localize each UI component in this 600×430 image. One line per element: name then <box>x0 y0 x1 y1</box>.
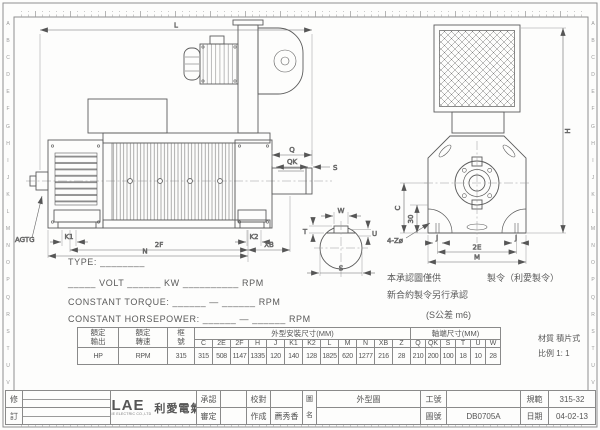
blower-assembly <box>184 20 303 133</box>
review-value <box>221 408 247 425</box>
dwg-no-label: 圖號 <box>421 408 447 425</box>
approval-note-left: 本承認圖僅供 <box>387 271 441 284</box>
grid-letter: I <box>4 159 13 164</box>
table-col-L: L <box>321 340 339 348</box>
dim-label-S-section: S <box>339 265 344 273</box>
date-value: 04-02-13 <box>549 408 596 425</box>
grid-letter: M <box>589 227 598 232</box>
grid-letter: L <box>4 210 13 215</box>
title-block: 修 LAELI AIE ELECTRIC CO.,LTD 利愛電氣 承認 校對 … <box>5 390 596 425</box>
grid-letters-right: ABCDEFGHIJKLMNOPQRSTUV <box>589 22 598 386</box>
check-label: 校對 <box>247 391 271 408</box>
table-col-K1: K1 <box>285 340 303 348</box>
table-values-row: HP RPM 315 31550811471335120140128182562… <box>78 348 501 365</box>
job-no-label: 工號 <box>421 391 447 408</box>
drawing-sheet: L Q QK S K1 K2 2F XB N AGTG <box>0 0 600 430</box>
grid-letter: M <box>4 227 13 232</box>
revision-label-top: 修 <box>6 391 23 408</box>
table-value-XB: 216 <box>375 348 393 365</box>
dimension-table: 額定輸出 額定轉速 框號 外型安裝尺寸(MM) 軸端尺寸(MM) C2E2FHJ… <box>77 327 501 365</box>
logo-lae-text: LAE <box>112 400 145 412</box>
grid-letter: I <box>589 159 598 164</box>
scale-value: 1: 1 <box>556 349 569 358</box>
table-col-N: N <box>357 340 375 348</box>
grid-letter: C <box>589 56 598 61</box>
table-value-N: 1277 <box>357 348 375 365</box>
made-label: 作成 <box>247 408 271 425</box>
rated-speed-header: 額定轉速 <box>119 328 168 348</box>
table-value-K2: 128 <box>303 348 321 365</box>
rated-output-header: 額定輸出 <box>78 328 119 348</box>
dim-label-M: M <box>474 254 480 262</box>
grid-letter: N <box>4 244 13 249</box>
drawing-name-label: 圖名 <box>303 391 317 425</box>
dim-label-H: H <box>564 128 572 133</box>
table-col-Q: Q <box>411 340 426 348</box>
grid-letter: A <box>4 22 13 27</box>
grid-letter: J <box>589 176 598 181</box>
dim-label-2E: 2E <box>473 244 482 252</box>
job-no-value <box>447 391 521 408</box>
drawing-name-value: 外型圖 <box>317 391 421 408</box>
dim-label-W: W <box>338 207 345 215</box>
dim-label-C: C <box>394 205 402 210</box>
dim-label-2F: 2F <box>155 241 163 249</box>
grid-letter: F <box>589 107 598 112</box>
grid-letter: F <box>4 107 13 112</box>
grid-letter: U <box>589 364 598 369</box>
dim-label-holes: 4-Zø <box>387 237 404 245</box>
table-col-2F: 2F <box>231 340 249 348</box>
dim-label-T: T <box>302 228 308 236</box>
dim-label-QK: QK <box>287 158 298 166</box>
company-logo: LAELI AIE ELECTRIC CO.,LTD 利愛電氣 <box>111 400 196 416</box>
revision-label-bottom: 訂 <box>6 408 23 425</box>
material-value: 積片式 <box>556 334 580 343</box>
dim-label-K1: K1 <box>64 233 73 241</box>
table-col-Z: Z <box>393 340 411 348</box>
drawing-name-bottom <box>317 408 421 425</box>
scale-label: 比例 <box>538 349 554 358</box>
grid-letters-left: ABCDEFGHIJKLMNOPQRSTUV <box>4 22 13 386</box>
grid-letter: G <box>589 125 598 130</box>
table-col-C: C <box>195 340 213 348</box>
power-line: _____ VOLT ______ KW __________ RPM <box>68 278 264 288</box>
table-value-QK: 200 <box>426 348 441 365</box>
table-col-2E: 2E <box>213 340 231 348</box>
dim-label-30: 30 <box>407 215 415 224</box>
grid-letter: R <box>4 313 13 318</box>
spec-value: 315-32 <box>549 391 596 408</box>
material-scale-block: 材質 積片式 比例 1: 1 <box>538 331 580 361</box>
grid-letter: T <box>4 347 13 352</box>
engineering-drawing: L Q QK S K1 K2 2F XB N AGTG <box>0 0 600 430</box>
shaft-section-dimensions: W T U S <box>302 207 377 276</box>
table-col-W: W <box>486 340 501 348</box>
grid-letter: C <box>4 56 13 61</box>
table-value-M: 620 <box>339 348 357 365</box>
dim-label-S: S <box>333 164 338 172</box>
grid-letter: K <box>589 193 598 198</box>
grid-letter: V <box>589 381 598 386</box>
table-value-W: 28 <box>486 348 501 365</box>
logo-company-name: 利愛電氣 <box>154 400 196 416</box>
table-col-QK: QK <box>426 340 441 348</box>
approve-value <box>221 391 247 408</box>
material-label: 材質 <box>538 334 554 343</box>
dim-label-J-right: J <box>514 234 517 242</box>
frame-value-cell: 315 <box>168 348 195 365</box>
table-value-2F: 1147 <box>231 348 249 365</box>
approve-label: 承認 <box>197 391 221 408</box>
terminal-box <box>88 99 167 133</box>
approval-note-right: 製令（利愛製令） <box>487 271 559 284</box>
approval-note-2: 新合約製令另行承認 <box>387 288 468 301</box>
table-col-H: H <box>249 340 267 348</box>
table-value-Q: 210 <box>411 348 426 365</box>
dim-label-XB: XB <box>264 241 274 249</box>
table-value-K1: 140 <box>285 348 303 365</box>
table-value-U: 10 <box>471 348 486 365</box>
revision-entry-bottom <box>23 408 111 425</box>
dim-label-N: N <box>142 248 147 256</box>
grid-letter: S <box>589 330 598 335</box>
constant-horsepower-line: CONSTANT HORSEPOWER: ______ — ______ RPM <box>68 314 311 324</box>
grid-letter: P <box>589 278 598 283</box>
table-value-L: 1825 <box>321 348 339 365</box>
grid-letter: S <box>4 330 13 335</box>
grid-letter: T <box>589 347 598 352</box>
date-label: 日期 <box>521 408 549 425</box>
grid-letter: U <box>4 364 13 369</box>
table-col-J: J <box>267 340 285 348</box>
motor-front-view <box>424 25 530 243</box>
grid-letter: E <box>589 90 598 95</box>
table-value-2E: 508 <box>213 348 231 365</box>
grid-letter: D <box>4 73 13 78</box>
check-value <box>271 391 303 408</box>
table-value-C: 315 <box>195 348 213 365</box>
table-value-J: 120 <box>267 348 285 365</box>
dim-label-L: L <box>174 22 178 30</box>
grid-letter: P <box>4 278 13 283</box>
table-col-M: M <box>339 340 357 348</box>
table-col-XB: XB <box>375 340 393 348</box>
company-logo-cell: LAELI AIE ELECTRIC CO.,LTD 利愛電氣 <box>111 391 197 425</box>
table-value-S: 100 <box>441 348 456 365</box>
table-col-T: T <box>456 340 471 348</box>
grid-letter: B <box>4 39 13 44</box>
tolerance-note: (S公差 m6) <box>426 308 471 321</box>
table-value-H: 1335 <box>249 348 267 365</box>
grid-letter: H <box>589 142 598 147</box>
grid-letter: R <box>589 313 598 318</box>
side-view-dimensions: L Q QK S K1 K2 2F XB N AGTG <box>15 22 338 263</box>
grid-letter: E <box>4 90 13 95</box>
grid-letter: G <box>4 125 13 130</box>
grid-letter: D <box>589 73 598 78</box>
speed-unit-cell: RPM <box>119 348 168 365</box>
review-label: 審定 <box>197 408 221 425</box>
grid-letter: A <box>589 22 598 27</box>
logo-subtext: LI AIE ELECTRIC CO.,LTD <box>111 412 152 416</box>
dims-group-header: 外型安裝尺寸(MM) <box>195 328 411 340</box>
grid-letter: O <box>4 261 13 266</box>
revision-entry-top <box>23 391 111 408</box>
grid-letter: Q <box>589 296 598 301</box>
grid-letter: L <box>589 210 598 215</box>
grid-letter: K <box>4 193 13 198</box>
grid-letter: O <box>589 261 598 266</box>
table-col-U: U <box>471 340 486 348</box>
dim-label-Q: Q <box>289 146 295 154</box>
table-value-T: 18 <box>456 348 471 365</box>
shaft-group-header: 軸端尺寸(MM) <box>411 328 501 340</box>
dwg-no-value: DB0705A <box>447 408 521 425</box>
dim-label-K2: K2 <box>249 233 258 241</box>
table-col-S: S <box>441 340 456 348</box>
output-unit-cell: HP <box>78 348 119 365</box>
grid-letter: Q <box>4 296 13 301</box>
table-value-Z: 28 <box>393 348 411 365</box>
grid-letter: J <box>4 176 13 181</box>
label-agtg: AGTG <box>15 236 35 244</box>
dim-label-U: U <box>372 230 377 238</box>
table-col-K2: K2 <box>303 340 321 348</box>
grid-letter: N <box>589 244 598 249</box>
spec-label: 規範 <box>521 391 549 408</box>
made-by-value: 薦秀香 <box>271 408 303 425</box>
type-line: TYPE: ________ <box>68 257 145 267</box>
grid-letter: H <box>4 142 13 147</box>
frame-no-header: 框號 <box>168 328 195 348</box>
grid-letter: B <box>589 39 598 44</box>
grid-letter: V <box>4 381 13 386</box>
constant-torque-line: CONSTANT TORQUE: ______ — ______ RPM <box>68 297 281 307</box>
dim-label-J-left: J <box>435 234 438 242</box>
